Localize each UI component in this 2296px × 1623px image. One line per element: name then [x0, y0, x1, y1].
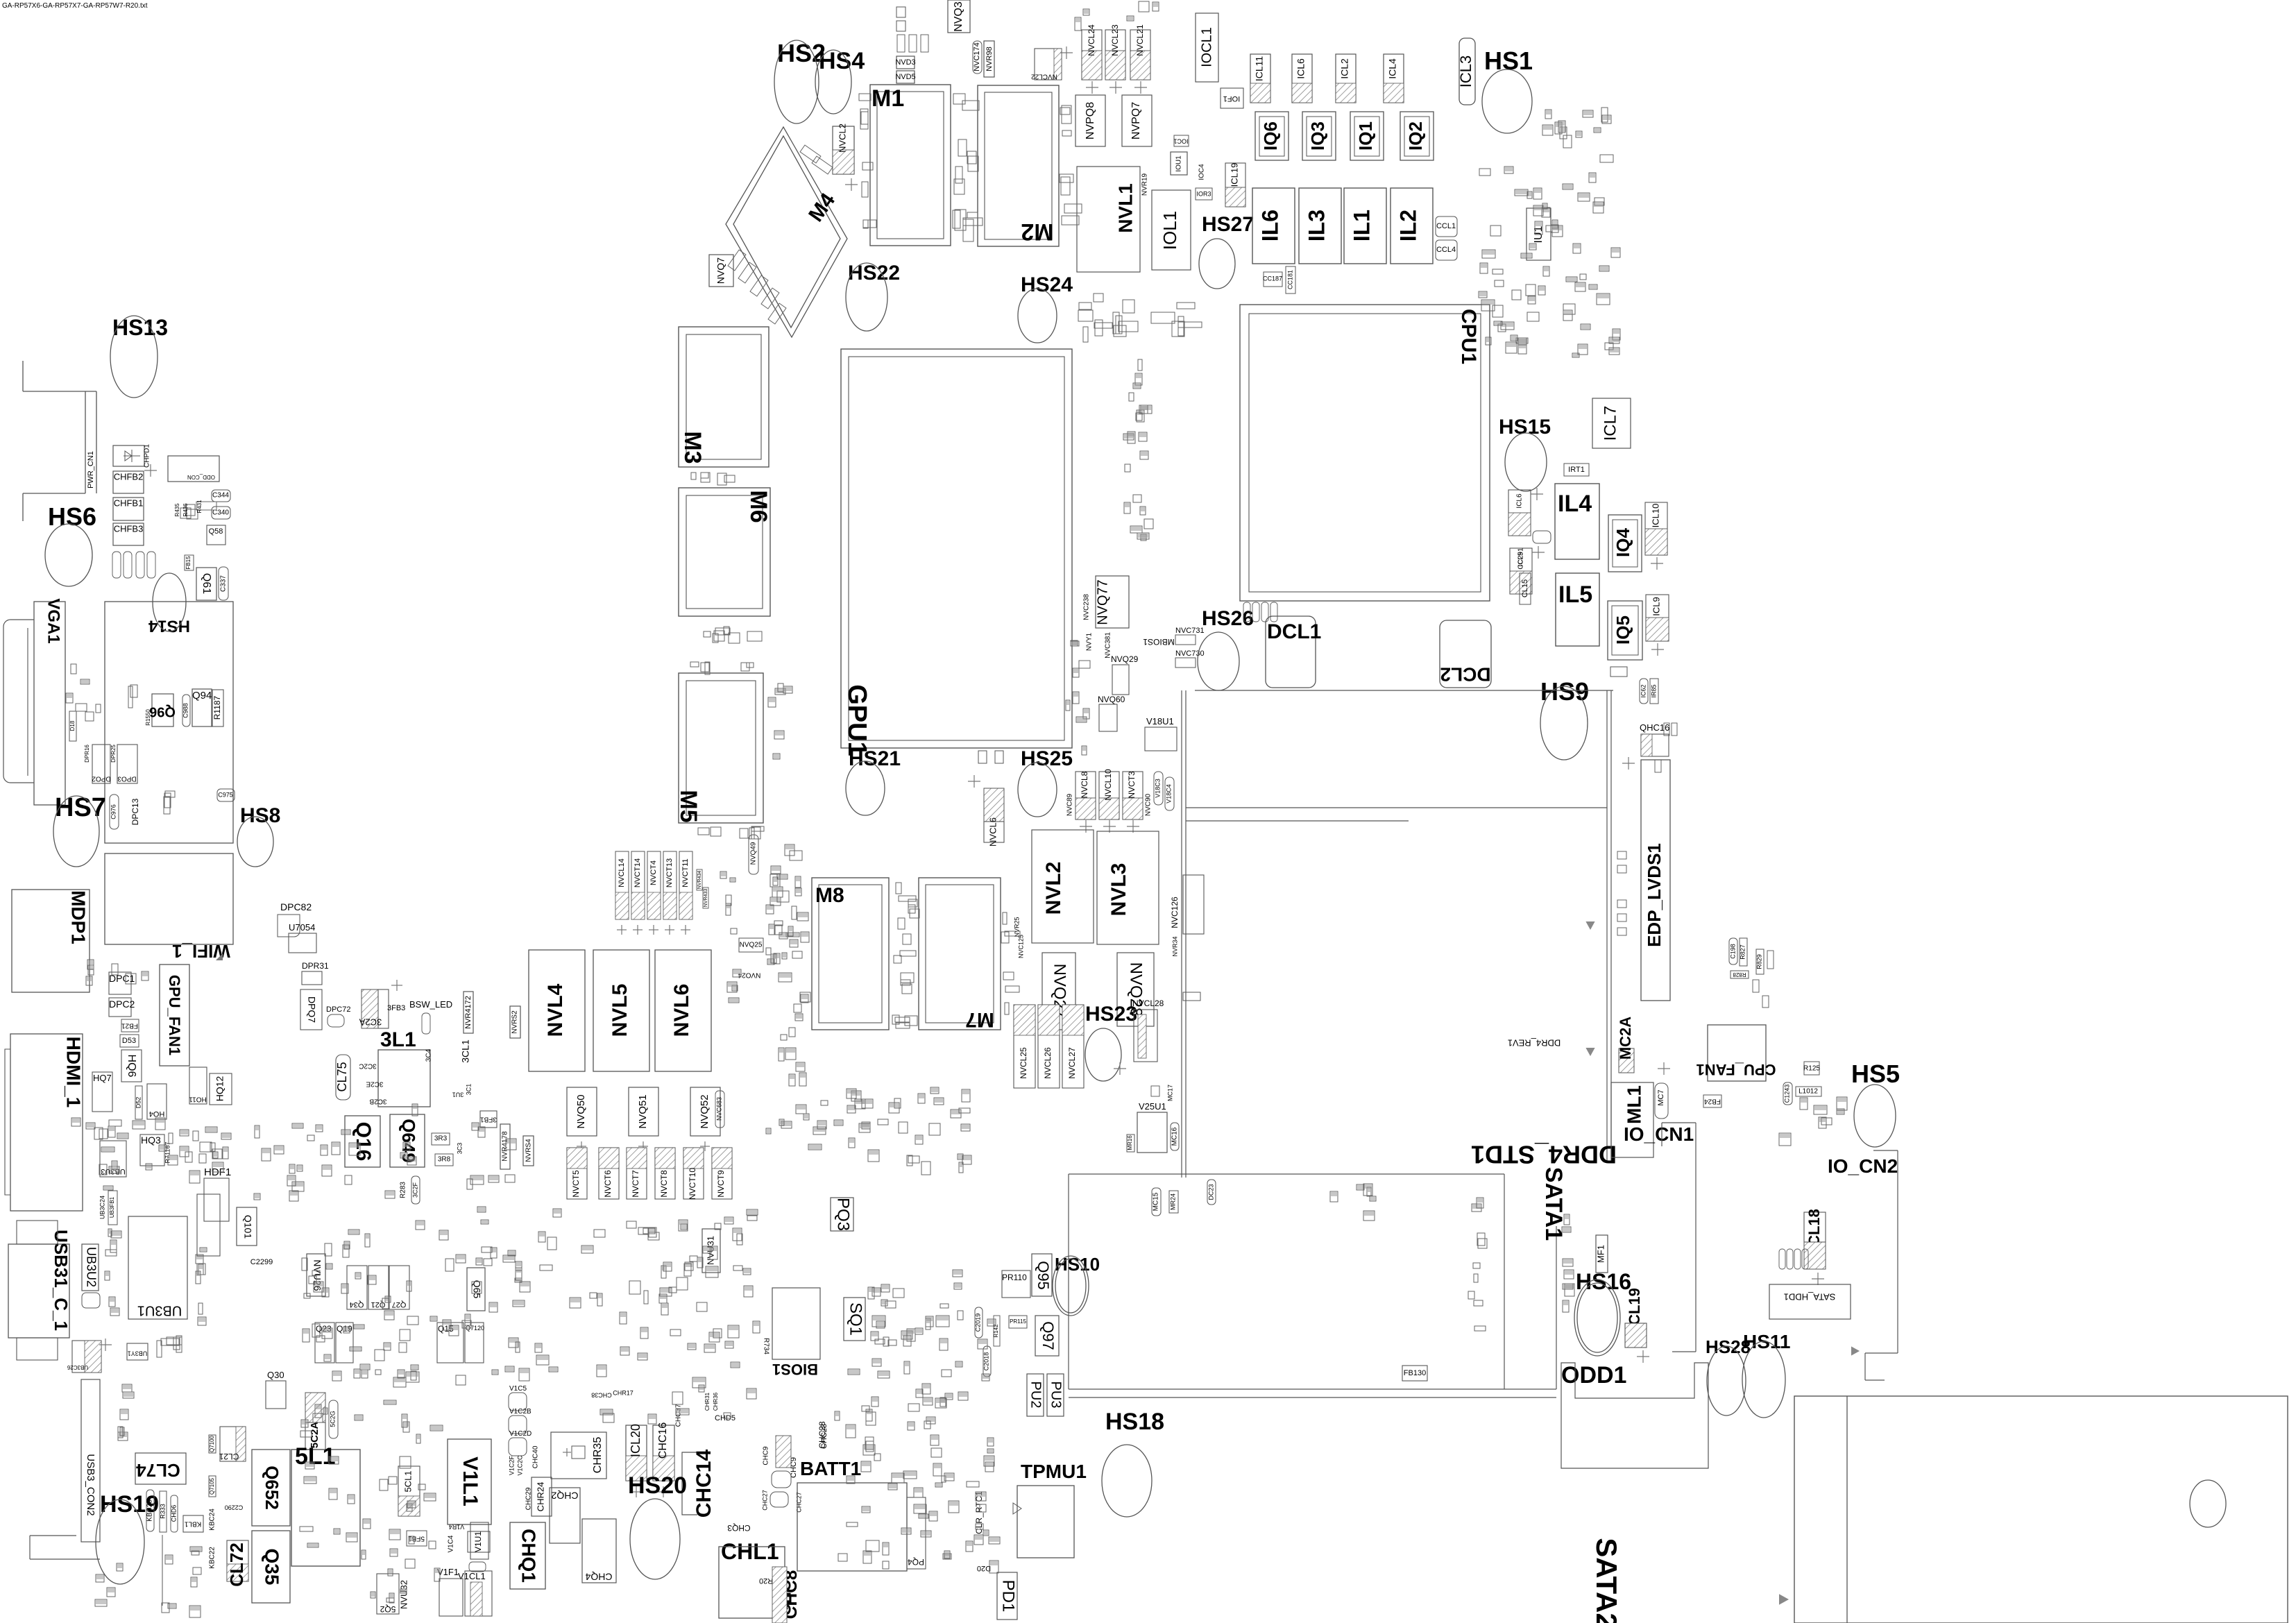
svg-text:NVQ49: NVQ49: [750, 842, 758, 865]
svg-text:DCL2: DCL2: [1440, 664, 1490, 686]
svg-text:PU2: PU2: [1028, 1382, 1044, 1409]
svg-text:NVQ50: NVQ50: [575, 1094, 587, 1128]
svg-text:FB21: FB21: [121, 1021, 138, 1029]
svg-text:UB3C24: UB3C24: [99, 1196, 105, 1219]
svg-text:M5: M5: [675, 790, 701, 822]
svg-text:Q7105: Q7105: [209, 1477, 215, 1495]
svg-text:3C2C: 3C2C: [359, 1062, 377, 1069]
svg-text:L1012: L1012: [1798, 1088, 1818, 1096]
svg-text:V1L1: V1L1: [459, 1456, 482, 1506]
svg-text:NVC683: NVC683: [715, 1097, 722, 1121]
svg-text:HO4: HO4: [149, 1110, 165, 1118]
svg-text:M8: M8: [815, 884, 844, 907]
svg-text:R734: R734: [762, 1338, 769, 1354]
svg-text:MR24: MR24: [1169, 1193, 1176, 1210]
svg-text:HS8: HS8: [240, 804, 280, 827]
svg-text:NVQ77: NVQ77: [1095, 579, 1110, 625]
svg-text:PWR_CN1: PWR_CN1: [87, 451, 95, 488]
svg-text:IOC4: IOC4: [1198, 164, 1206, 180]
svg-text:IOC1: IOC1: [1173, 138, 1188, 145]
svg-text:MC16: MC16: [1171, 1127, 1179, 1146]
svg-text:GA-RP57X6-GA-RP57X7-GA-RP57W7-: GA-RP57X6-GA-RP57X7-GA-RP57W7-R20.txt: [2, 2, 148, 10]
svg-text:CHQ3: CHQ3: [727, 1523, 751, 1533]
svg-text:5Q2: 5Q2: [380, 1604, 396, 1614]
svg-text:D18: D18: [69, 720, 76, 731]
svg-text:C2019: C2019: [974, 1314, 981, 1332]
svg-text:GPU1: GPU1: [842, 684, 871, 756]
svg-text:Q94: Q94: [192, 690, 212, 702]
svg-text:DPC72: DPC72: [326, 1005, 350, 1014]
svg-text:CL75: CL75: [335, 1062, 349, 1091]
svg-text:UB3Y1: UB3Y1: [128, 1350, 148, 1357]
svg-text:NVL5: NVL5: [609, 984, 631, 1037]
svg-text:IL3: IL3: [1304, 210, 1329, 241]
svg-text:IC62: IC62: [1640, 684, 1647, 697]
svg-text:3CL1: 3CL1: [460, 1039, 471, 1063]
svg-text:HS13: HS13: [112, 315, 168, 340]
svg-text:3R3: 3R3: [434, 1135, 448, 1143]
svg-text:NVQ7: NVQ7: [715, 257, 726, 284]
svg-text:CHQ2: CHQ2: [551, 1490, 578, 1501]
svg-text:Q7100: Q7100: [209, 1435, 215, 1452]
svg-text:Q58: Q58: [209, 527, 223, 536]
svg-text:IQ1: IQ1: [1355, 121, 1376, 151]
svg-text:CHR24: CHR24: [535, 1482, 545, 1512]
svg-text:NVCL27: NVCL27: [1067, 1047, 1077, 1079]
svg-text:R1550: R1550: [145, 709, 151, 726]
svg-text:DC23: DC23: [1207, 1184, 1214, 1200]
svg-text:V1C5: V1C5: [509, 1385, 527, 1393]
svg-text:DDR4_REV1: DDR4_REV1: [1508, 1038, 1561, 1048]
svg-text:NVC174: NVC174: [973, 42, 981, 71]
svg-text:C337: C337: [220, 575, 228, 592]
svg-text:UB3C26: UB3C26: [67, 1364, 88, 1370]
svg-text:IQ2: IQ2: [1405, 121, 1426, 151]
svg-text:CPU1: CPU1: [1457, 309, 1480, 364]
svg-text:NVCT9: NVCT9: [716, 1170, 726, 1198]
svg-text:NVC126: NVC126: [1170, 897, 1180, 928]
svg-text:UB3U1: UB3U1: [137, 1303, 182, 1318]
svg-text:HS27: HS27: [1202, 213, 1254, 236]
svg-text:NVCL23: NVCL23: [1110, 24, 1120, 56]
svg-text:NVRS2: NVRS2: [511, 1010, 519, 1034]
svg-text:R1187: R1187: [212, 695, 222, 720]
svg-text:DPO2: DPO2: [92, 774, 111, 782]
svg-text:NVPQ8: NVPQ8: [1085, 102, 1096, 139]
svg-text:PU3: PU3: [1048, 1382, 1064, 1409]
svg-text:QHC16: QHC16: [1640, 722, 1669, 733]
svg-text:ICL6: ICL6: [1516, 493, 1524, 509]
svg-text:CHC27: CHC27: [795, 1492, 802, 1513]
svg-text:DPR25: DPR25: [110, 745, 117, 763]
svg-text:CC181: CC181: [1286, 270, 1293, 289]
svg-text:NVR434: NVR434: [697, 871, 702, 890]
svg-text:R828: R828: [1733, 971, 1746, 978]
svg-text:CHC38: CHC38: [591, 1392, 612, 1399]
svg-text:KBL1: KBL1: [184, 1520, 201, 1527]
svg-text:Q95: Q95: [1035, 1261, 1052, 1290]
svg-text:NVR4178: NVR4178: [502, 1131, 509, 1162]
svg-text:NVQ52: NVQ52: [699, 1094, 711, 1128]
svg-text:IQ3: IQ3: [1307, 121, 1328, 151]
svg-text:IOCL1: IOCL1: [1199, 27, 1214, 67]
svg-text:HS7: HS7: [55, 793, 106, 822]
svg-text:UB3FB1: UB3FB1: [109, 1196, 115, 1218]
svg-text:R829: R829: [1755, 954, 1762, 969]
svg-text:SATA2: SATA2: [1590, 1538, 1623, 1623]
svg-text:ICL4: ICL4: [1387, 58, 1398, 79]
svg-text:DPO3: DPO3: [117, 774, 137, 782]
svg-text:ICL10: ICL10: [1650, 504, 1660, 528]
svg-text:3C2A: 3C2A: [359, 1017, 382, 1028]
svg-text:MC2A: MC2A: [1617, 1017, 1634, 1060]
svg-text:CL74: CL74: [136, 1460, 180, 1481]
svg-text:Q61: Q61: [201, 573, 212, 594]
svg-text:NVU32: NVU32: [398, 1580, 409, 1609]
svg-text:NVC125: NVC125: [1017, 935, 1024, 958]
svg-text:3FB1: 3FB1: [480, 1115, 497, 1123]
svg-text:NVL3: NVL3: [1107, 863, 1130, 917]
svg-text:CHR17: CHR17: [613, 1389, 633, 1396]
svg-text:NVQ3: NVQ3: [953, 1, 964, 32]
svg-text:NVR4172: NVR4172: [464, 996, 473, 1029]
svg-text:MBIOS1: MBIOS1: [1143, 637, 1175, 647]
svg-text:V25U1: V25U1: [1139, 1101, 1166, 1112]
svg-text:D52: D52: [135, 1097, 142, 1109]
svg-text:GPU_FAN1: GPU_FAN1: [166, 975, 183, 1055]
svg-text:NVR19: NVR19: [1141, 173, 1149, 196]
svg-text:VGA1: VGA1: [44, 598, 63, 643]
svg-text:V18C4: V18C4: [1165, 784, 1172, 804]
svg-text:MC17: MC17: [1166, 1085, 1173, 1101]
svg-text:C2299: C2299: [250, 1258, 273, 1266]
svg-text:V1C2F: V1C2F: [508, 1455, 515, 1475]
svg-text:PQ3: PQ3: [834, 1198, 853, 1231]
svg-text:DPQ7: DPQ7: [306, 996, 317, 1023]
svg-text:3FB3: 3FB3: [387, 1004, 405, 1012]
svg-text:R333: R333: [159, 1504, 166, 1519]
svg-text:NVL1: NVL1: [1114, 183, 1136, 233]
svg-text:CL72: CL72: [226, 1543, 247, 1587]
svg-text:CHFB3: CHFB3: [114, 523, 144, 534]
svg-text:DPC82: DPC82: [280, 901, 312, 912]
svg-text:5CL1: 5CL1: [402, 1470, 413, 1492]
svg-text:D20: D20: [977, 1564, 991, 1572]
svg-text:R125: R125: [1803, 1065, 1820, 1073]
svg-text:D53: D53: [122, 1037, 136, 1045]
svg-text:ICL7: ICL7: [1601, 406, 1619, 441]
svg-text:NVCL6: NVCL6: [987, 817, 998, 847]
svg-text:Q35: Q35: [262, 1549, 283, 1586]
svg-text:NVCL24: NVCL24: [1087, 24, 1096, 56]
svg-text:MDP1: MDP1: [68, 890, 90, 944]
svg-text:5C2G: 5C2G: [329, 1411, 336, 1427]
svg-text:Q30: Q30: [267, 1370, 284, 1380]
svg-text:CHR35: CHR35: [592, 1437, 604, 1474]
svg-text:C975: C975: [218, 791, 233, 798]
svg-text:CHFB2: CHFB2: [114, 471, 144, 482]
svg-text:FB130: FB130: [1404, 1369, 1426, 1377]
svg-text:NVQ60: NVQ60: [1098, 695, 1125, 704]
svg-text:SATA_HDD1: SATA_HDD1: [1784, 1292, 1836, 1302]
svg-text:C344: C344: [212, 492, 229, 500]
svg-text:NVCL21: NVCL21: [1135, 24, 1145, 56]
svg-text:IRT1: IRT1: [1568, 466, 1585, 474]
svg-text:V1C2C: V1C2C: [516, 1455, 523, 1476]
svg-text:C2290: C2290: [225, 1504, 244, 1511]
svg-text:ICL19: ICL19: [1229, 163, 1239, 187]
svg-text:CHQ1: CHQ1: [518, 1529, 540, 1583]
svg-text:HS15: HS15: [1499, 416, 1551, 439]
svg-text:M2: M2: [1021, 219, 1053, 245]
svg-text:CC187: CC187: [1263, 275, 1282, 282]
svg-text:HDMI_1: HDMI_1: [63, 1037, 85, 1108]
svg-text:NVCT11: NVCT11: [681, 858, 690, 887]
svg-text:DPC1: DPC1: [109, 973, 135, 984]
svg-text:CHC37: CHC37: [675, 1404, 683, 1427]
svg-text:NVR433: NVR433: [704, 889, 708, 908]
svg-text:CC291: CC291: [1517, 547, 1525, 570]
svg-text:NVCL8: NVCL8: [1080, 771, 1089, 798]
svg-text:DDR4_STD1: DDR4_STD1: [1471, 1140, 1617, 1169]
svg-text:NVL6: NVL6: [670, 984, 693, 1037]
svg-text:HS23: HS23: [1085, 1003, 1137, 1026]
svg-text:HS25: HS25: [1021, 747, 1073, 770]
svg-text:V1R4: V1R4: [449, 1524, 465, 1531]
svg-text:BSW_LED: BSW_LED: [409, 999, 452, 1010]
svg-text:M3: M3: [679, 431, 706, 464]
svg-text:M6: M6: [745, 490, 772, 522]
svg-text:NVCL2: NVCL2: [837, 124, 847, 153]
svg-text:NVY1: NVY1: [1086, 633, 1094, 652]
svg-text:ODD_CON: ODD_CON: [187, 474, 215, 480]
svg-text:Q21: Q21: [371, 1300, 386, 1309]
svg-text:HS16: HS16: [1576, 1269, 1631, 1294]
svg-text:V18C3: V18C3: [1154, 779, 1161, 798]
svg-text:3L1: 3L1: [380, 1028, 416, 1051]
svg-text:PD1: PD1: [999, 1580, 1018, 1613]
svg-text:NVQ29: NVQ29: [1111, 654, 1139, 664]
svg-text:CHC28: CHC28: [820, 1424, 828, 1449]
svg-text:MC15: MC15: [1153, 1192, 1160, 1211]
svg-text:NVC730: NVC730: [1175, 649, 1205, 658]
svg-text:CCL1: CCL1: [1436, 222, 1456, 230]
svg-text:HS1: HS1: [1484, 46, 1533, 75]
svg-text:HS5: HS5: [1851, 1060, 1900, 1088]
svg-text:KBC23: KBC23: [146, 1499, 154, 1522]
svg-text:V1U1: V1U1: [473, 1531, 483, 1552]
svg-text:HS24: HS24: [1021, 273, 1073, 296]
svg-text:NVQ25: NVQ25: [740, 942, 763, 949]
svg-text:NVD3: NVD3: [895, 58, 915, 67]
svg-text:CL21: CL21: [219, 1452, 239, 1461]
svg-text:NVCT7: NVCT7: [631, 1170, 640, 1198]
svg-text:HS9: HS9: [1540, 677, 1589, 706]
svg-text:C1243: C1243: [1783, 1085, 1790, 1103]
svg-text:NVRS4: NVRS4: [525, 1139, 533, 1162]
svg-text:ICL20: ICL20: [629, 1424, 643, 1457]
svg-text:IQ5: IQ5: [1613, 615, 1633, 645]
svg-text:R827: R827: [1739, 944, 1746, 960]
svg-text:Q101: Q101: [242, 1215, 253, 1239]
svg-text:3R8: 3R8: [438, 1156, 451, 1164]
svg-text:NVCL25: NVCL25: [1019, 1047, 1028, 1079]
svg-text:V1CL1: V1CL1: [458, 1571, 486, 1581]
svg-text:NVC238: NVC238: [1083, 594, 1091, 620]
svg-text:KBC24: KBC24: [209, 1509, 216, 1531]
svg-text:NVCT5: NVCT5: [571, 1170, 581, 1198]
svg-text:MF1: MF1: [1595, 1245, 1606, 1263]
svg-text:3C2F: 3C2F: [411, 1182, 418, 1198]
svg-text:NVCT8: NVCT8: [659, 1170, 669, 1198]
svg-text:HS6: HS6: [48, 502, 96, 531]
svg-text:NVL4: NVL4: [544, 983, 567, 1037]
svg-text:IL6: IL6: [1257, 210, 1282, 241]
svg-text:ICL11: ICL11: [1254, 56, 1265, 82]
svg-text:CHQ4: CHQ4: [585, 1571, 612, 1582]
svg-text:R435: R435: [174, 503, 180, 517]
svg-text:NVCT14: NVCT14: [633, 858, 642, 887]
svg-text:ML1: ML1: [1623, 1085, 1644, 1124]
svg-text:R431: R431: [196, 500, 203, 513]
svg-text:USB31_C_1: USB31_C_1: [51, 1230, 71, 1331]
svg-text:DPR31: DPR31: [302, 961, 329, 971]
svg-text:HO11: HO11: [189, 1095, 207, 1103]
svg-text:CHR31: CHR31: [704, 1392, 711, 1411]
svg-text:IL4: IL4: [1558, 491, 1592, 517]
svg-text:IL2: IL2: [1395, 210, 1420, 241]
svg-text:HS20: HS20: [628, 1472, 687, 1499]
svg-text:HQ12: HQ12: [214, 1076, 226, 1102]
svg-text:NVC89: NVC89: [1066, 793, 1074, 816]
svg-text:CPU_FAN1: CPU_FAN1: [1697, 1061, 1776, 1078]
svg-text:CCL4: CCL4: [1436, 246, 1456, 254]
svg-text:FB24: FB24: [1704, 1097, 1721, 1105]
svg-text:NVQ51: NVQ51: [637, 1094, 649, 1128]
svg-text:CHC14: CHC14: [692, 1450, 715, 1518]
svg-text:ODD1: ODD1: [1561, 1362, 1626, 1388]
svg-text:HQ6: HQ6: [126, 1055, 137, 1078]
svg-text:V1C4: V1C4: [448, 1535, 455, 1552]
svg-text:HS26: HS26: [1202, 607, 1254, 630]
svg-text:CHR36: CHR36: [713, 1392, 719, 1411]
svg-text:IOR3: IOR3: [1196, 190, 1211, 197]
svg-text:ICL2: ICL2: [1339, 58, 1350, 79]
svg-text:CHC40: CHC40: [532, 1445, 540, 1468]
svg-text:CL15: CL15: [1521, 579, 1529, 597]
svg-text:IOF1: IOF1: [1223, 94, 1240, 103]
svg-text:NVC731: NVC731: [1175, 627, 1205, 635]
svg-text:V1C2D: V1C2D: [509, 1430, 532, 1438]
svg-text:HS14: HS14: [148, 617, 190, 636]
svg-text:3C1: 3C1: [465, 1084, 472, 1096]
svg-text:NVPQ7: NVPQ7: [1130, 102, 1142, 139]
svg-text:NVCL14: NVCL14: [618, 858, 626, 887]
svg-text:DCL1: DCL1: [1267, 620, 1321, 643]
svg-text:V18U1: V18U1: [1146, 716, 1174, 726]
svg-text:IL1: IL1: [1349, 210, 1374, 241]
svg-text:IQ4: IQ4: [1613, 528, 1633, 557]
svg-text:DPC2: DPC2: [109, 999, 135, 1010]
svg-text:V1C2B: V1C2B: [509, 1408, 532, 1416]
svg-text:DPR16: DPR16: [84, 745, 90, 763]
svg-text:V1F1: V1F1: [437, 1567, 459, 1577]
svg-text:C976: C976: [110, 804, 117, 819]
svg-text:HS18: HS18: [1105, 1409, 1164, 1435]
svg-text:C988: C988: [182, 703, 189, 718]
svg-text:Q65: Q65: [471, 1280, 482, 1299]
svg-text:NVCT3: NVCT3: [1127, 771, 1137, 799]
svg-text:NVCL26: NVCL26: [1043, 1047, 1053, 1079]
svg-text:CHC16: CHC16: [657, 1422, 669, 1459]
svg-text:IO_CN2: IO_CN2: [1828, 1155, 1898, 1177]
svg-text:IOU1: IOU1: [1175, 155, 1183, 172]
svg-text:HS4: HS4: [819, 48, 865, 74]
svg-text:EDP_LVDS1: EDP_LVDS1: [1644, 843, 1665, 947]
svg-text:NVCL22: NVCL22: [1031, 72, 1057, 80]
svg-text:CHD6: CHD6: [170, 1505, 177, 1522]
svg-text:TPMU1: TPMU1: [1021, 1461, 1087, 1482]
svg-text:IO_CN1: IO_CN1: [1624, 1123, 1694, 1145]
svg-text:CL18: CL18: [1805, 1209, 1823, 1246]
svg-text:NVL2: NVL2: [1042, 862, 1065, 915]
svg-text:NVCT10: NVCT10: [688, 1168, 697, 1200]
svg-text:IL5: IL5: [1558, 581, 1592, 608]
svg-text:C198: C198: [1729, 944, 1736, 959]
svg-text:NVR25: NVR25: [1013, 917, 1020, 937]
svg-text:NVCT13: NVCT13: [665, 858, 674, 887]
svg-text:ICL3: ICL3: [1457, 56, 1474, 87]
svg-text:USB3_CON2: USB3_CON2: [85, 1454, 96, 1515]
svg-text:Q652: Q652: [262, 1465, 282, 1510]
svg-text:C2018: C2018: [983, 1352, 989, 1371]
svg-text:NVR34: NVR34: [1171, 936, 1178, 956]
svg-text:IR85: IR85: [1650, 684, 1657, 697]
svg-text:BIOS1: BIOS1: [772, 1361, 818, 1378]
svg-text:Q97: Q97: [1039, 1321, 1057, 1350]
svg-text:ICL6: ICL6: [1295, 58, 1307, 79]
svg-text:DPC13: DPC13: [130, 798, 140, 825]
svg-text:CHFB1: CHFB1: [114, 498, 144, 508]
svg-text:NVC90: NVC90: [1145, 793, 1153, 816]
svg-text:ICL9: ICL9: [1651, 597, 1661, 615]
svg-text:NVCL28: NVCL28: [1132, 999, 1164, 1008]
svg-text:NVR98: NVR98: [985, 46, 994, 71]
svg-text:KBC22: KBC22: [209, 1547, 216, 1569]
svg-text:Q34: Q34: [350, 1300, 364, 1309]
svg-text:PQ4: PQ4: [908, 1557, 924, 1567]
svg-text:3U1: 3U1: [452, 1091, 464, 1098]
svg-text:R283: R283: [400, 1182, 407, 1198]
svg-text:HQ7: HQ7: [93, 1073, 112, 1083]
svg-text:NVCL10: NVCL10: [1103, 769, 1113, 801]
svg-text:CHPD1: CHPD1: [144, 444, 151, 468]
svg-text:HQ3: HQ3: [141, 1135, 161, 1146]
svg-text:UB3U2: UB3U2: [84, 1247, 98, 1287]
svg-text:PR110: PR110: [1002, 1273, 1027, 1282]
svg-text:HS21: HS21: [849, 747, 901, 770]
svg-text:CHC9: CHC9: [763, 1446, 770, 1465]
svg-text:M1: M1: [871, 85, 904, 112]
svg-text:3C2B: 3C2B: [369, 1097, 386, 1105]
svg-text:NVD5: NVD5: [895, 73, 915, 81]
svg-text:Q96: Q96: [149, 704, 176, 720]
svg-text:IQ6: IQ6: [1260, 121, 1281, 151]
svg-text:CHC27: CHC27: [761, 1490, 768, 1511]
svg-text:NVCT6: NVCT6: [603, 1170, 613, 1198]
svg-text:PR115: PR115: [1010, 1318, 1026, 1325]
svg-text:CHL1: CHL1: [721, 1539, 779, 1564]
